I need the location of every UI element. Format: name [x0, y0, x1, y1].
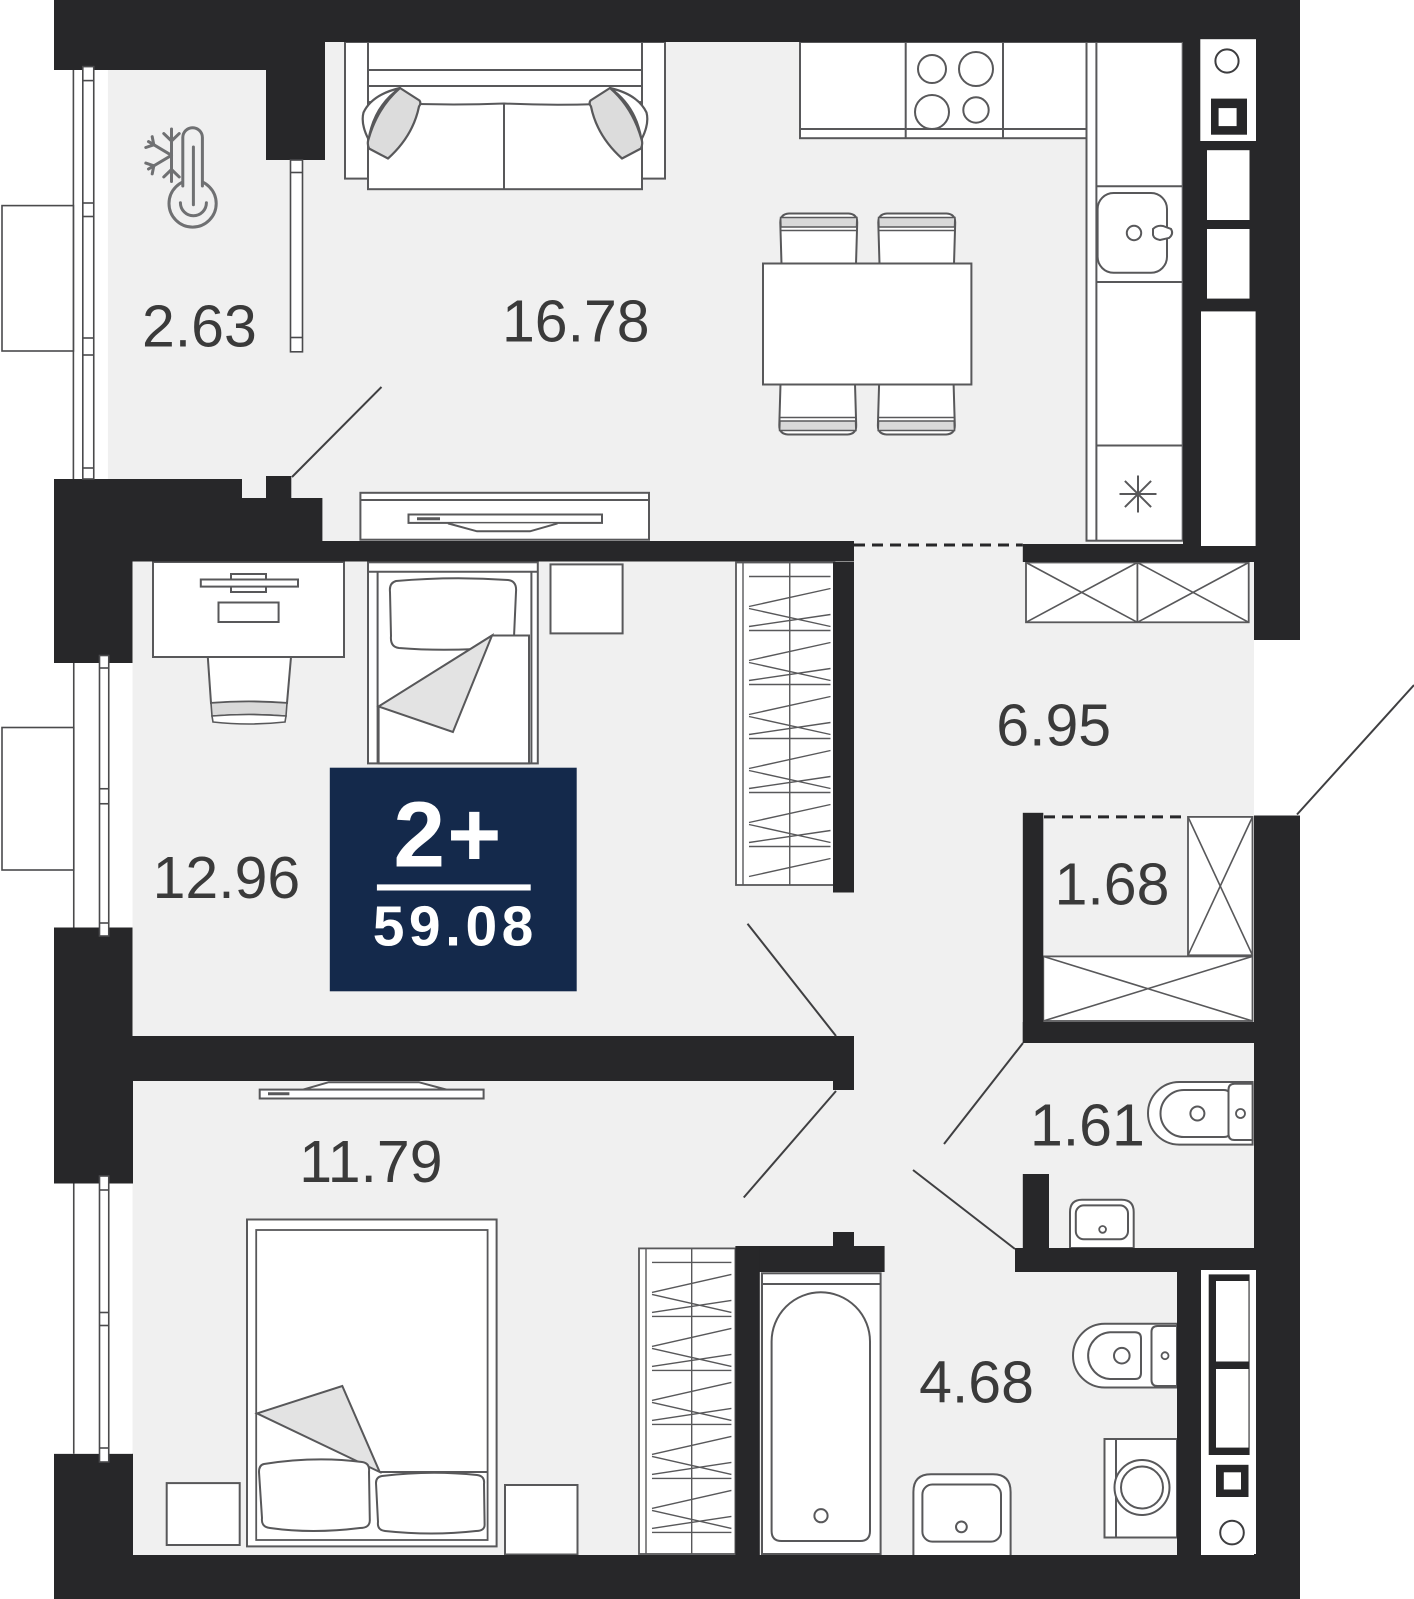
svg-text:16.78: 16.78 — [502, 289, 650, 355]
svg-text:12.96: 12.96 — [153, 845, 301, 911]
svg-text:59.08: 59.08 — [373, 894, 538, 958]
svg-text:1.61: 1.61 — [1030, 1093, 1145, 1159]
svg-text:4.68: 4.68 — [919, 1349, 1034, 1415]
svg-text:6.95: 6.95 — [996, 693, 1111, 759]
svg-text:2+: 2+ — [393, 783, 503, 887]
svg-text:1.68: 1.68 — [1055, 851, 1170, 917]
svg-text:2.63: 2.63 — [142, 293, 257, 359]
svg-text:11.79: 11.79 — [299, 1129, 442, 1195]
